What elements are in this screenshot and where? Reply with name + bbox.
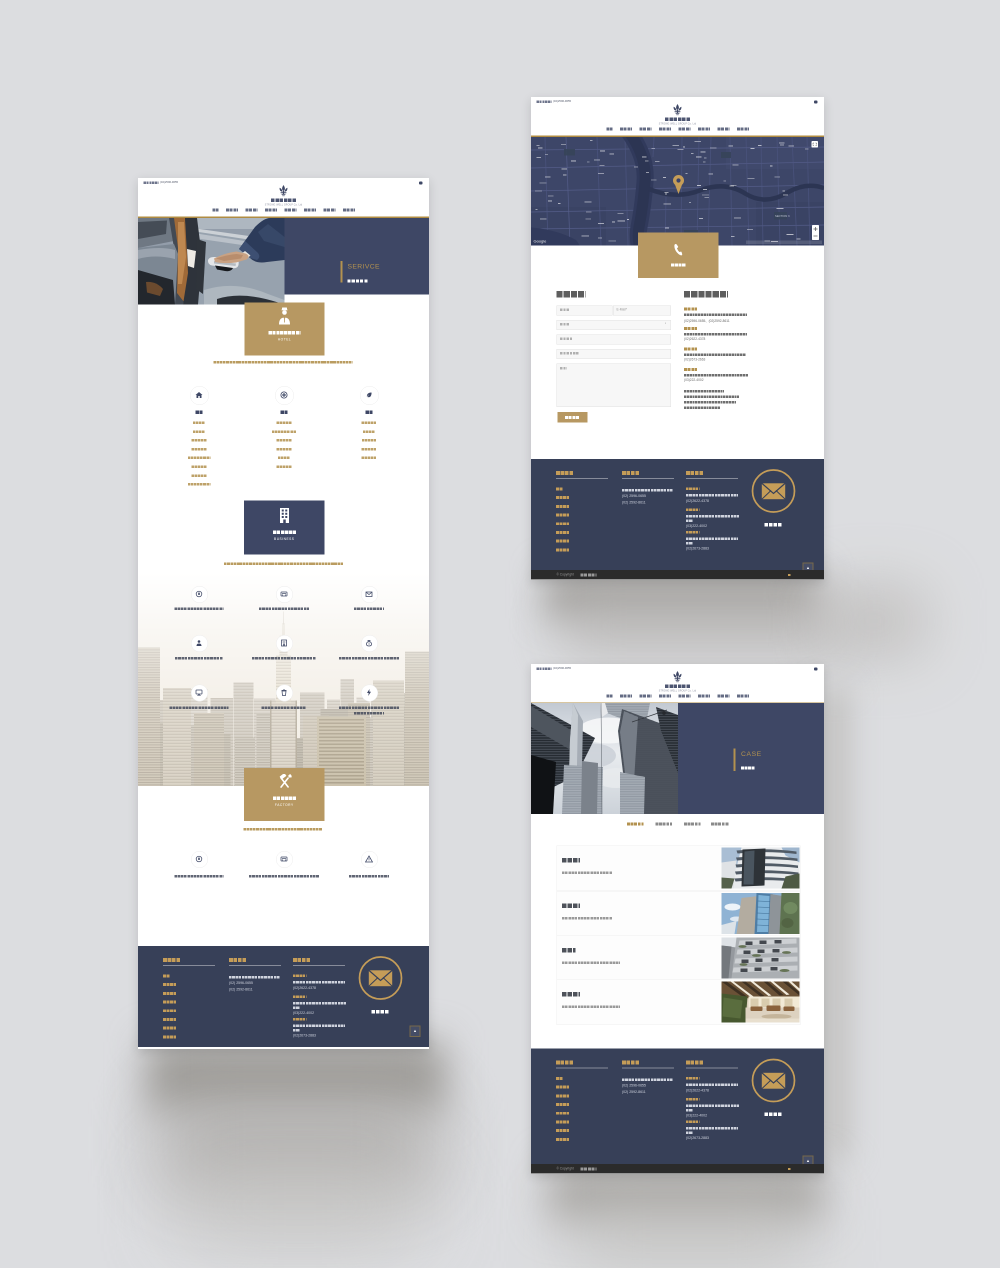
svg-text:SECTION 3: SECTION 3 [775,214,790,218]
svg-text:$: $ [368,642,370,646]
svg-text:Google: Google [534,239,548,244]
